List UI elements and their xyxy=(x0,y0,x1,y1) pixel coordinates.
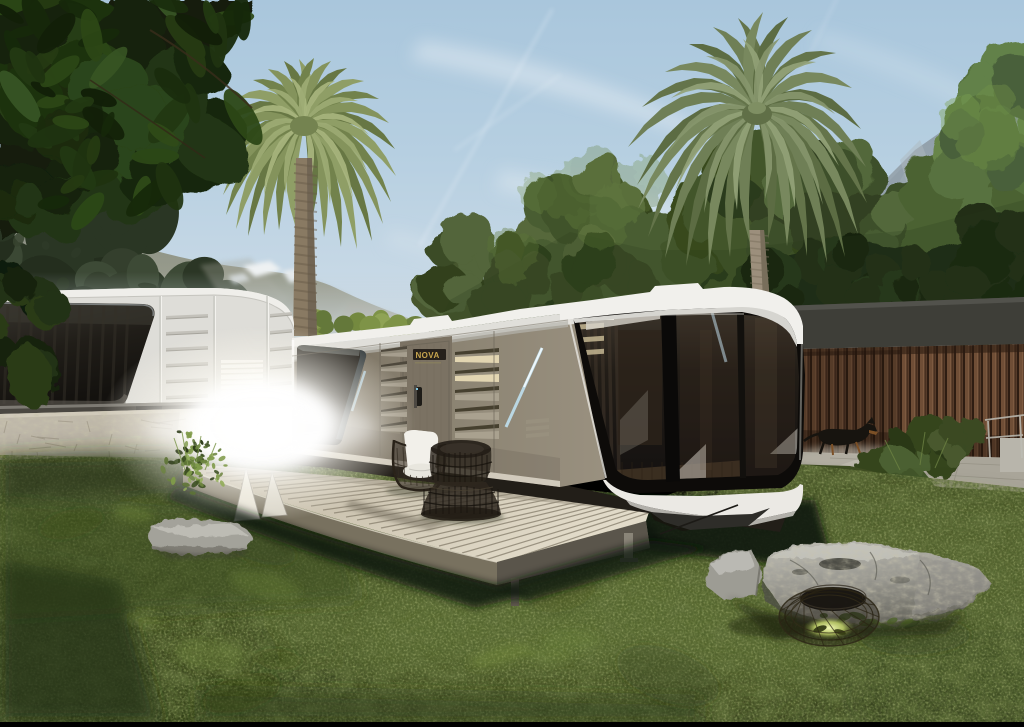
svg-text:NOVA: NOVA xyxy=(416,351,440,360)
